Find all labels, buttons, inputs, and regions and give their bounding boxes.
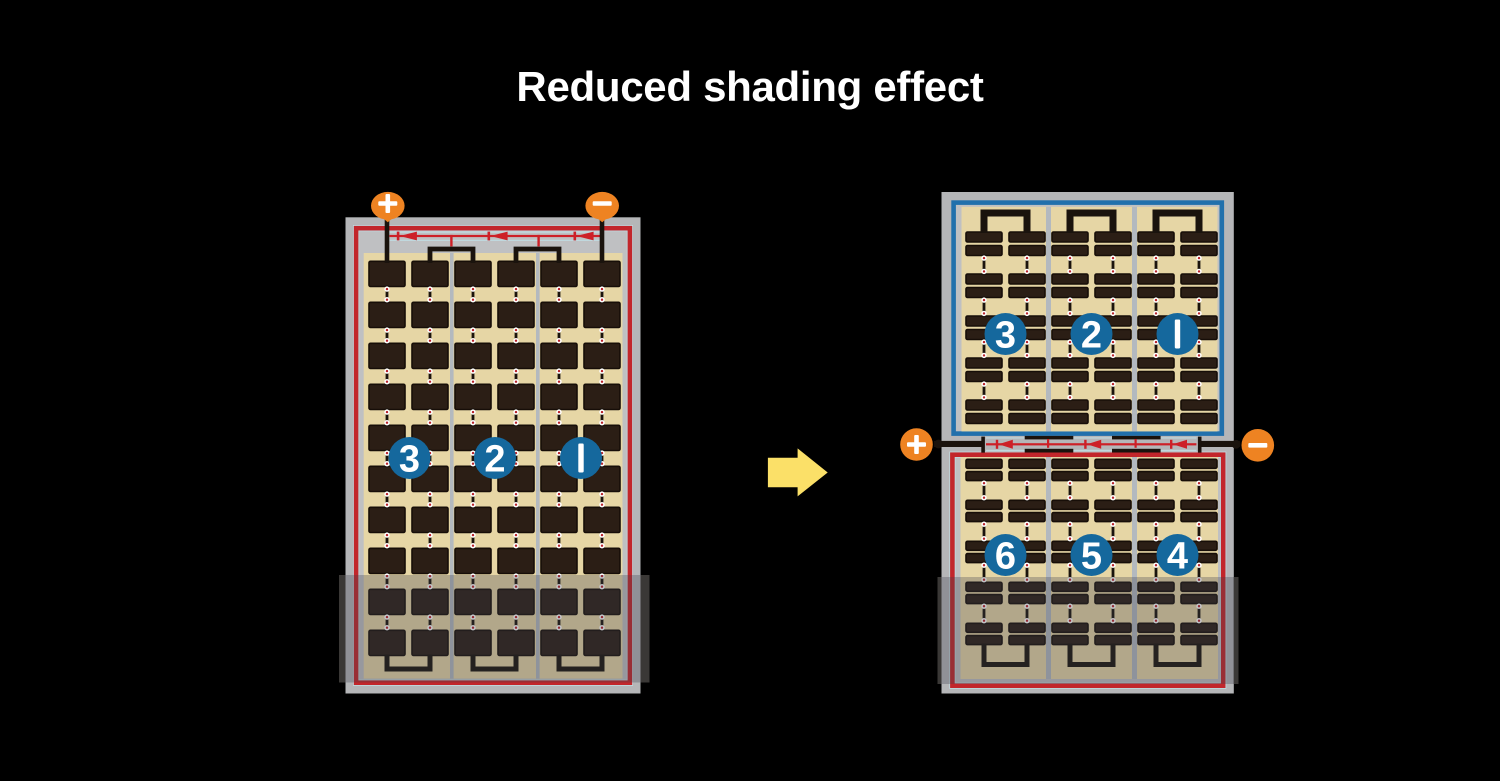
svg-text:6: 6	[995, 536, 1016, 578]
svg-text:3: 3	[995, 315, 1016, 357]
svg-text:3: 3	[399, 439, 420, 481]
svg-text:2: 2	[1081, 315, 1102, 357]
svg-text:5: 5	[1081, 536, 1102, 578]
svg-text:Reduced shading effect: Reduced shading effect	[516, 63, 983, 110]
svg-text:4: 4	[1167, 536, 1188, 578]
svg-text:2: 2	[484, 439, 505, 481]
